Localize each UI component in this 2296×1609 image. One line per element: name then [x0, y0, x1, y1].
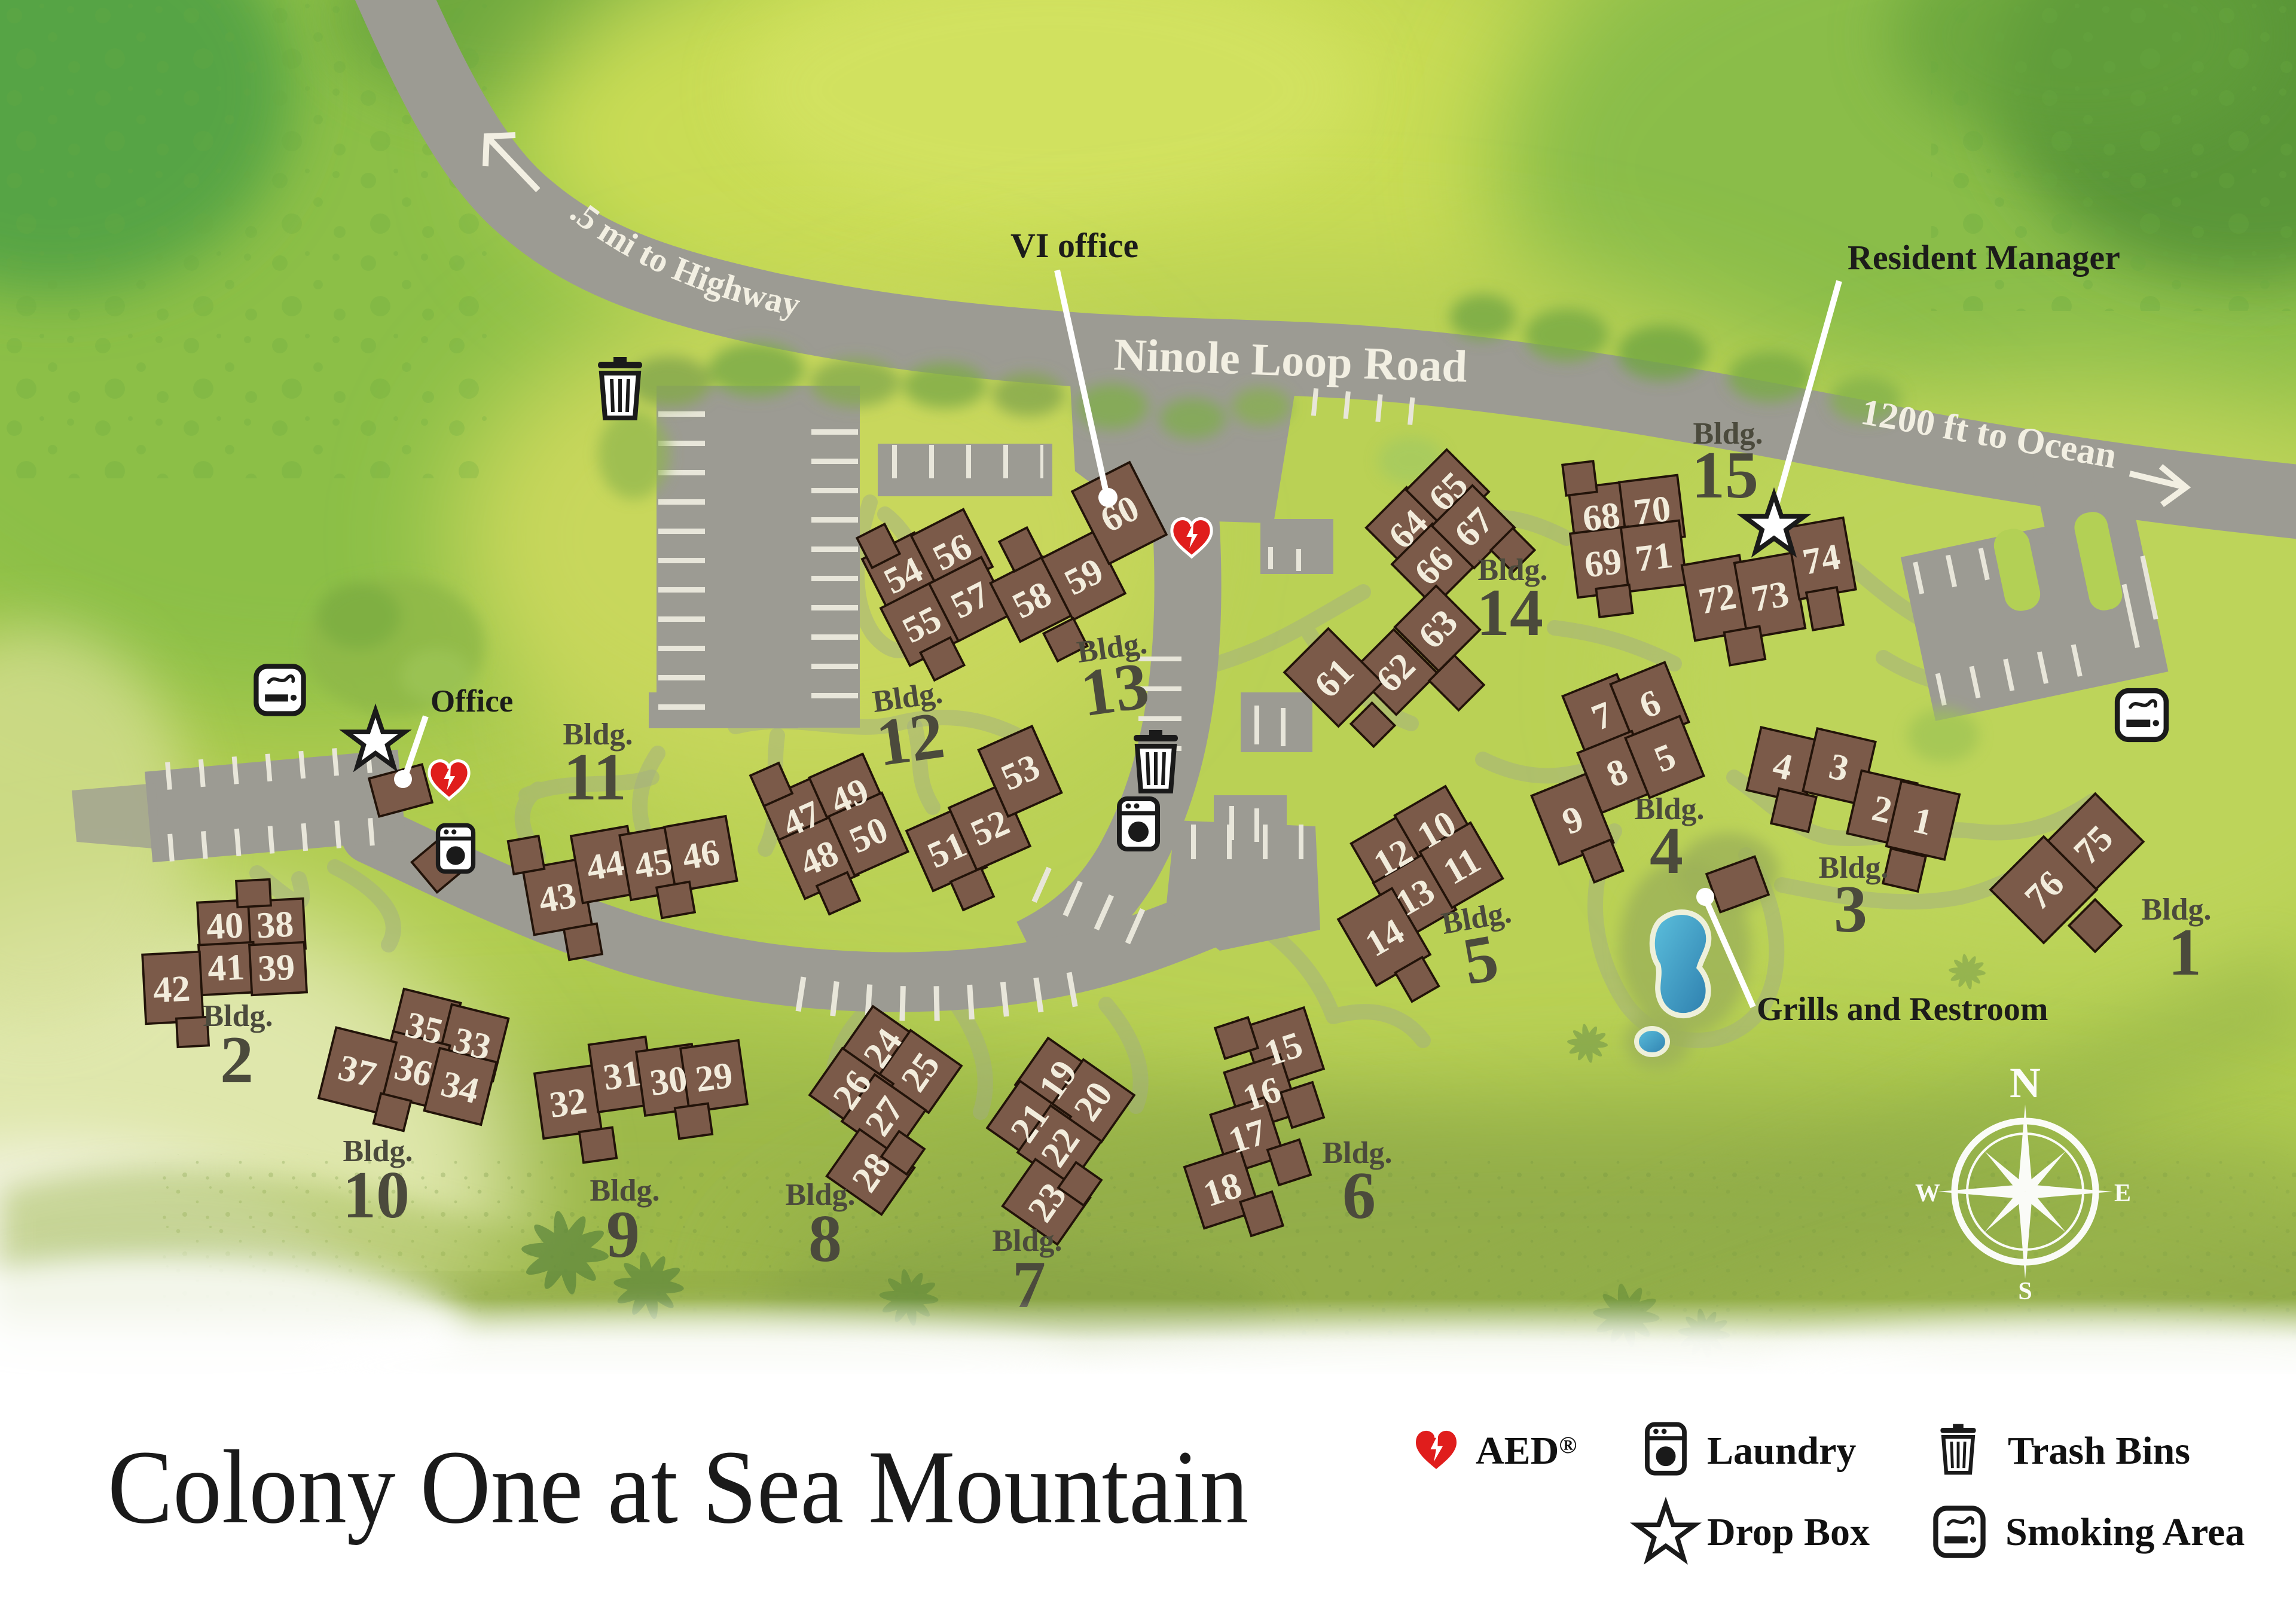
svg-text:VI office: VI office — [1010, 226, 1138, 265]
svg-text:4: 4 — [1650, 814, 1683, 888]
svg-text:72: 72 — [1696, 576, 1739, 622]
svg-text:32: 32 — [547, 1080, 590, 1126]
svg-text:Smoking Area: Smoking Area — [2005, 1510, 2245, 1554]
svg-text:Trash Bins: Trash Bins — [2008, 1429, 2190, 1473]
svg-text:12: 12 — [872, 698, 948, 780]
svg-text:15: 15 — [1692, 438, 1758, 512]
svg-text:43: 43 — [536, 875, 579, 921]
svg-text:71: 71 — [1633, 535, 1675, 579]
svg-text:44: 44 — [584, 842, 627, 889]
svg-text:11: 11 — [563, 740, 627, 814]
svg-text:41: 41 — [206, 947, 245, 989]
svg-text:2: 2 — [220, 1023, 254, 1097]
svg-text:70: 70 — [1631, 488, 1673, 533]
svg-text:Drop Box: Drop Box — [1707, 1510, 1870, 1554]
svg-text:68: 68 — [1580, 494, 1622, 539]
svg-text:45: 45 — [631, 841, 675, 887]
svg-text:30: 30 — [648, 1058, 690, 1104]
svg-text:13: 13 — [1076, 648, 1153, 731]
svg-text:31: 31 — [601, 1053, 643, 1098]
svg-text:73: 73 — [1748, 573, 1792, 620]
svg-text:6: 6 — [1342, 1159, 1376, 1233]
svg-text:8: 8 — [808, 1202, 842, 1276]
svg-text:N: N — [2010, 1059, 2041, 1107]
svg-text:42: 42 — [152, 968, 191, 1010]
svg-text:10: 10 — [343, 1158, 410, 1232]
svg-text:38: 38 — [255, 903, 294, 946]
svg-text:29: 29 — [693, 1055, 735, 1100]
svg-text:69: 69 — [1582, 541, 1624, 585]
svg-text:3: 3 — [1834, 872, 1867, 947]
svg-text:1: 1 — [2168, 915, 2202, 990]
svg-text:Laundry: Laundry — [1707, 1429, 1856, 1473]
svg-text:Grills and Restroom: Grills and Restroom — [1757, 991, 2048, 1028]
svg-text:46: 46 — [679, 832, 723, 878]
svg-text:39: 39 — [257, 947, 295, 989]
svg-text:14: 14 — [1476, 576, 1543, 650]
svg-text:9: 9 — [606, 1198, 640, 1272]
svg-text:Colony One at Sea Mountain: Colony One at Sea Mountain — [108, 1429, 1248, 1546]
svg-text:W: W — [1915, 1180, 1940, 1207]
svg-text:Office: Office — [430, 684, 513, 719]
svg-text:40: 40 — [205, 905, 244, 947]
svg-text:74: 74 — [1800, 536, 1843, 583]
svg-text:Resident Manager: Resident Manager — [1848, 238, 2120, 277]
svg-text:E: E — [2114, 1180, 2131, 1207]
